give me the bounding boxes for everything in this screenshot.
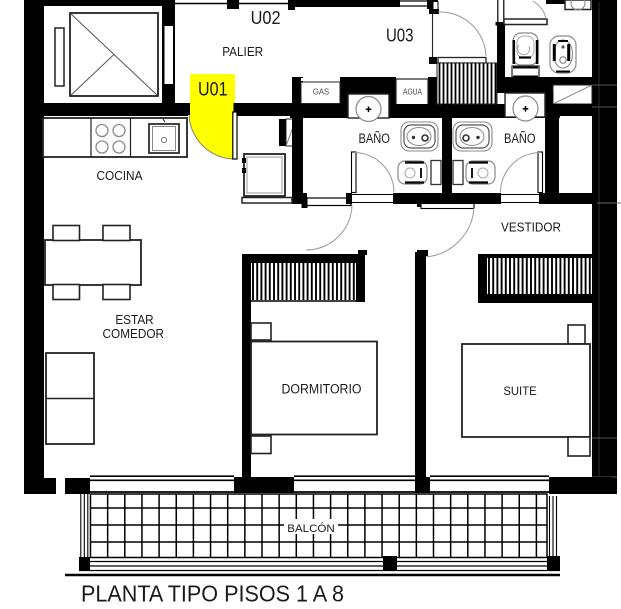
- svg-text:BAÑO: BAÑO: [504, 131, 536, 146]
- svg-text:ESTAR: ESTAR: [115, 313, 153, 327]
- svg-text:BALCÓN: BALCÓN: [287, 522, 335, 535]
- svg-text:AGUA: AGUA: [403, 87, 422, 97]
- svg-text:GAS: GAS: [313, 86, 329, 96]
- svg-text:U02: U02: [251, 8, 281, 28]
- svg-text:U01: U01: [198, 80, 228, 101]
- svg-text:PLANTA TIPO PISOS 1 A 8: PLANTA TIPO PISOS 1 A 8: [81, 581, 344, 607]
- svg-text:COMEDOR: COMEDOR: [103, 327, 165, 341]
- svg-text:DORMITORIO: DORMITORIO: [282, 382, 362, 397]
- svg-text:PALIER: PALIER: [222, 45, 263, 59]
- svg-text:VESTIDOR: VESTIDOR: [501, 220, 561, 234]
- svg-text:COCINA: COCINA: [97, 168, 143, 183]
- svg-text:BAÑO: BAÑO: [358, 131, 390, 146]
- svg-text:SUITE: SUITE: [503, 384, 536, 398]
- svg-text:U03: U03: [386, 26, 414, 46]
